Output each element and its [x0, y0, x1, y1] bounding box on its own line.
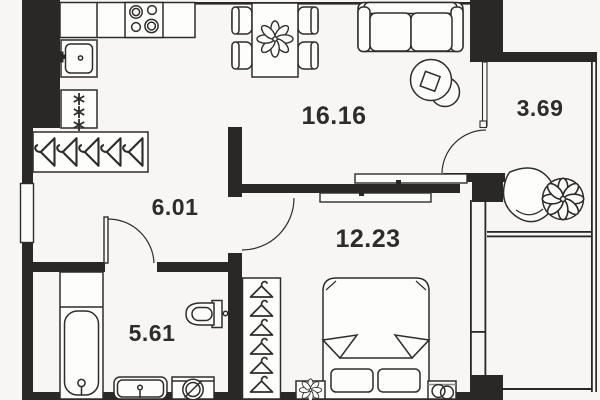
wall-bathroom-top-left [22, 262, 105, 272]
balcony-partition-line-2 [487, 236, 591, 238]
wall-balcony-top [500, 52, 597, 62]
toilet-icon [186, 301, 228, 328]
room-area-bathroom: 5.61 [129, 320, 176, 347]
floor-plan-drawing [0, 0, 600, 400]
balcony-bottom-line [503, 388, 591, 390]
balcony-glazing-right-outer [591, 62, 593, 392]
wall-block-top-right [470, 0, 503, 62]
coffee-table-icon [411, 60, 460, 107]
hallway-closet [33, 132, 148, 172]
floor-plan: 16.16 3.69 6.01 12.23 5.61 [0, 0, 600, 400]
wall-hall-bedroom-upper [228, 127, 242, 197]
washing-machine-icon [172, 377, 214, 400]
wall-sliding-track [242, 184, 460, 193]
wall-left-upper [22, 0, 33, 184]
flower-centerpiece-icon [257, 21, 293, 57]
sofa-icon [358, 3, 463, 52]
entrance-door-icon [21, 184, 34, 243]
bedroom-window-tick [470, 331, 486, 333]
kitchen-furniture [57, 3, 195, 132]
room-area-bedroom: 12.23 [335, 225, 400, 254]
bedroom-window-line-2 [485, 200, 487, 375]
room-area-living-kitchen: 16.16 [301, 102, 366, 131]
kitchen-sink-icon [57, 40, 97, 77]
refrigerator-icon [61, 90, 97, 131]
swing-door-bathroom [104, 217, 154, 263]
dining-set [232, 3, 318, 77]
potted-plant-icon [542, 178, 583, 219]
bedroom-furniture [243, 278, 457, 400]
nightstand-flower-icon [296, 379, 325, 400]
bedroom-window-line-1 [470, 200, 472, 375]
bathtub-icon [60, 272, 103, 399]
wall-hall-bedroom-lower [228, 253, 242, 400]
room-area-balcony: 3.69 [517, 95, 564, 122]
washbasin-icon [114, 377, 167, 399]
stove-icon [125, 3, 163, 38]
balcony-glazing-right-inner [595, 62, 597, 392]
nightstand-rings-icon [428, 381, 456, 399]
living-furniture [358, 3, 463, 107]
wall-block-bottom-right [470, 375, 503, 400]
swing-door-bedroom [242, 198, 294, 250]
balcony-partition-line-1 [487, 231, 591, 233]
wardrobe-hangers-icon [243, 278, 281, 399]
closet-outline [33, 132, 148, 172]
room-area-hallway: 6.01 [152, 194, 199, 221]
balcony-furniture [504, 168, 584, 222]
